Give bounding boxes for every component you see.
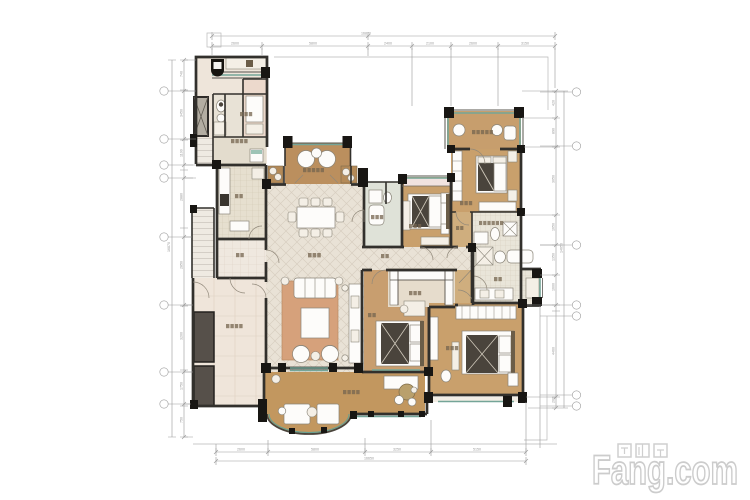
svg-text:3450: 3450 (180, 109, 184, 117)
svg-text:4460: 4460 (552, 347, 556, 355)
svg-text:1100: 1100 (180, 149, 184, 157)
svg-text:5150: 5150 (473, 448, 481, 452)
svg-text:2600: 2600 (469, 42, 477, 46)
svg-text:Fang.com: Fang.com (592, 447, 738, 493)
svg-text:16870: 16870 (361, 32, 371, 36)
svg-text:1650: 1650 (552, 223, 556, 231)
svg-text:16650: 16650 (364, 457, 374, 461)
svg-text:3150: 3150 (521, 42, 529, 46)
svg-text:2850: 2850 (180, 261, 184, 269)
svg-text:5800: 5800 (311, 448, 319, 452)
svg-text:420: 420 (552, 100, 556, 106)
svg-text:16870: 16870 (167, 242, 171, 252)
svg-text:3200: 3200 (180, 332, 184, 340)
svg-text:1600: 1600 (552, 283, 556, 291)
svg-text:740: 740 (180, 71, 184, 77)
svg-text:1750: 1750 (180, 382, 184, 390)
svg-text:2100: 2100 (426, 42, 434, 46)
svg-text:3250: 3250 (393, 448, 401, 452)
svg-text:14650: 14650 (560, 243, 564, 253)
svg-text:2600: 2600 (231, 42, 239, 46)
svg-text:200: 200 (552, 397, 556, 403)
svg-text:2400: 2400 (384, 42, 392, 46)
svg-text:750: 750 (180, 417, 184, 423)
svg-text:3050: 3050 (552, 175, 556, 183)
svg-text:890: 890 (552, 128, 556, 134)
svg-text:1350: 1350 (552, 253, 556, 261)
svg-text:2600: 2600 (237, 448, 245, 452)
svg-text:2880: 2880 (180, 193, 184, 201)
svg-text:5800: 5800 (309, 42, 317, 46)
